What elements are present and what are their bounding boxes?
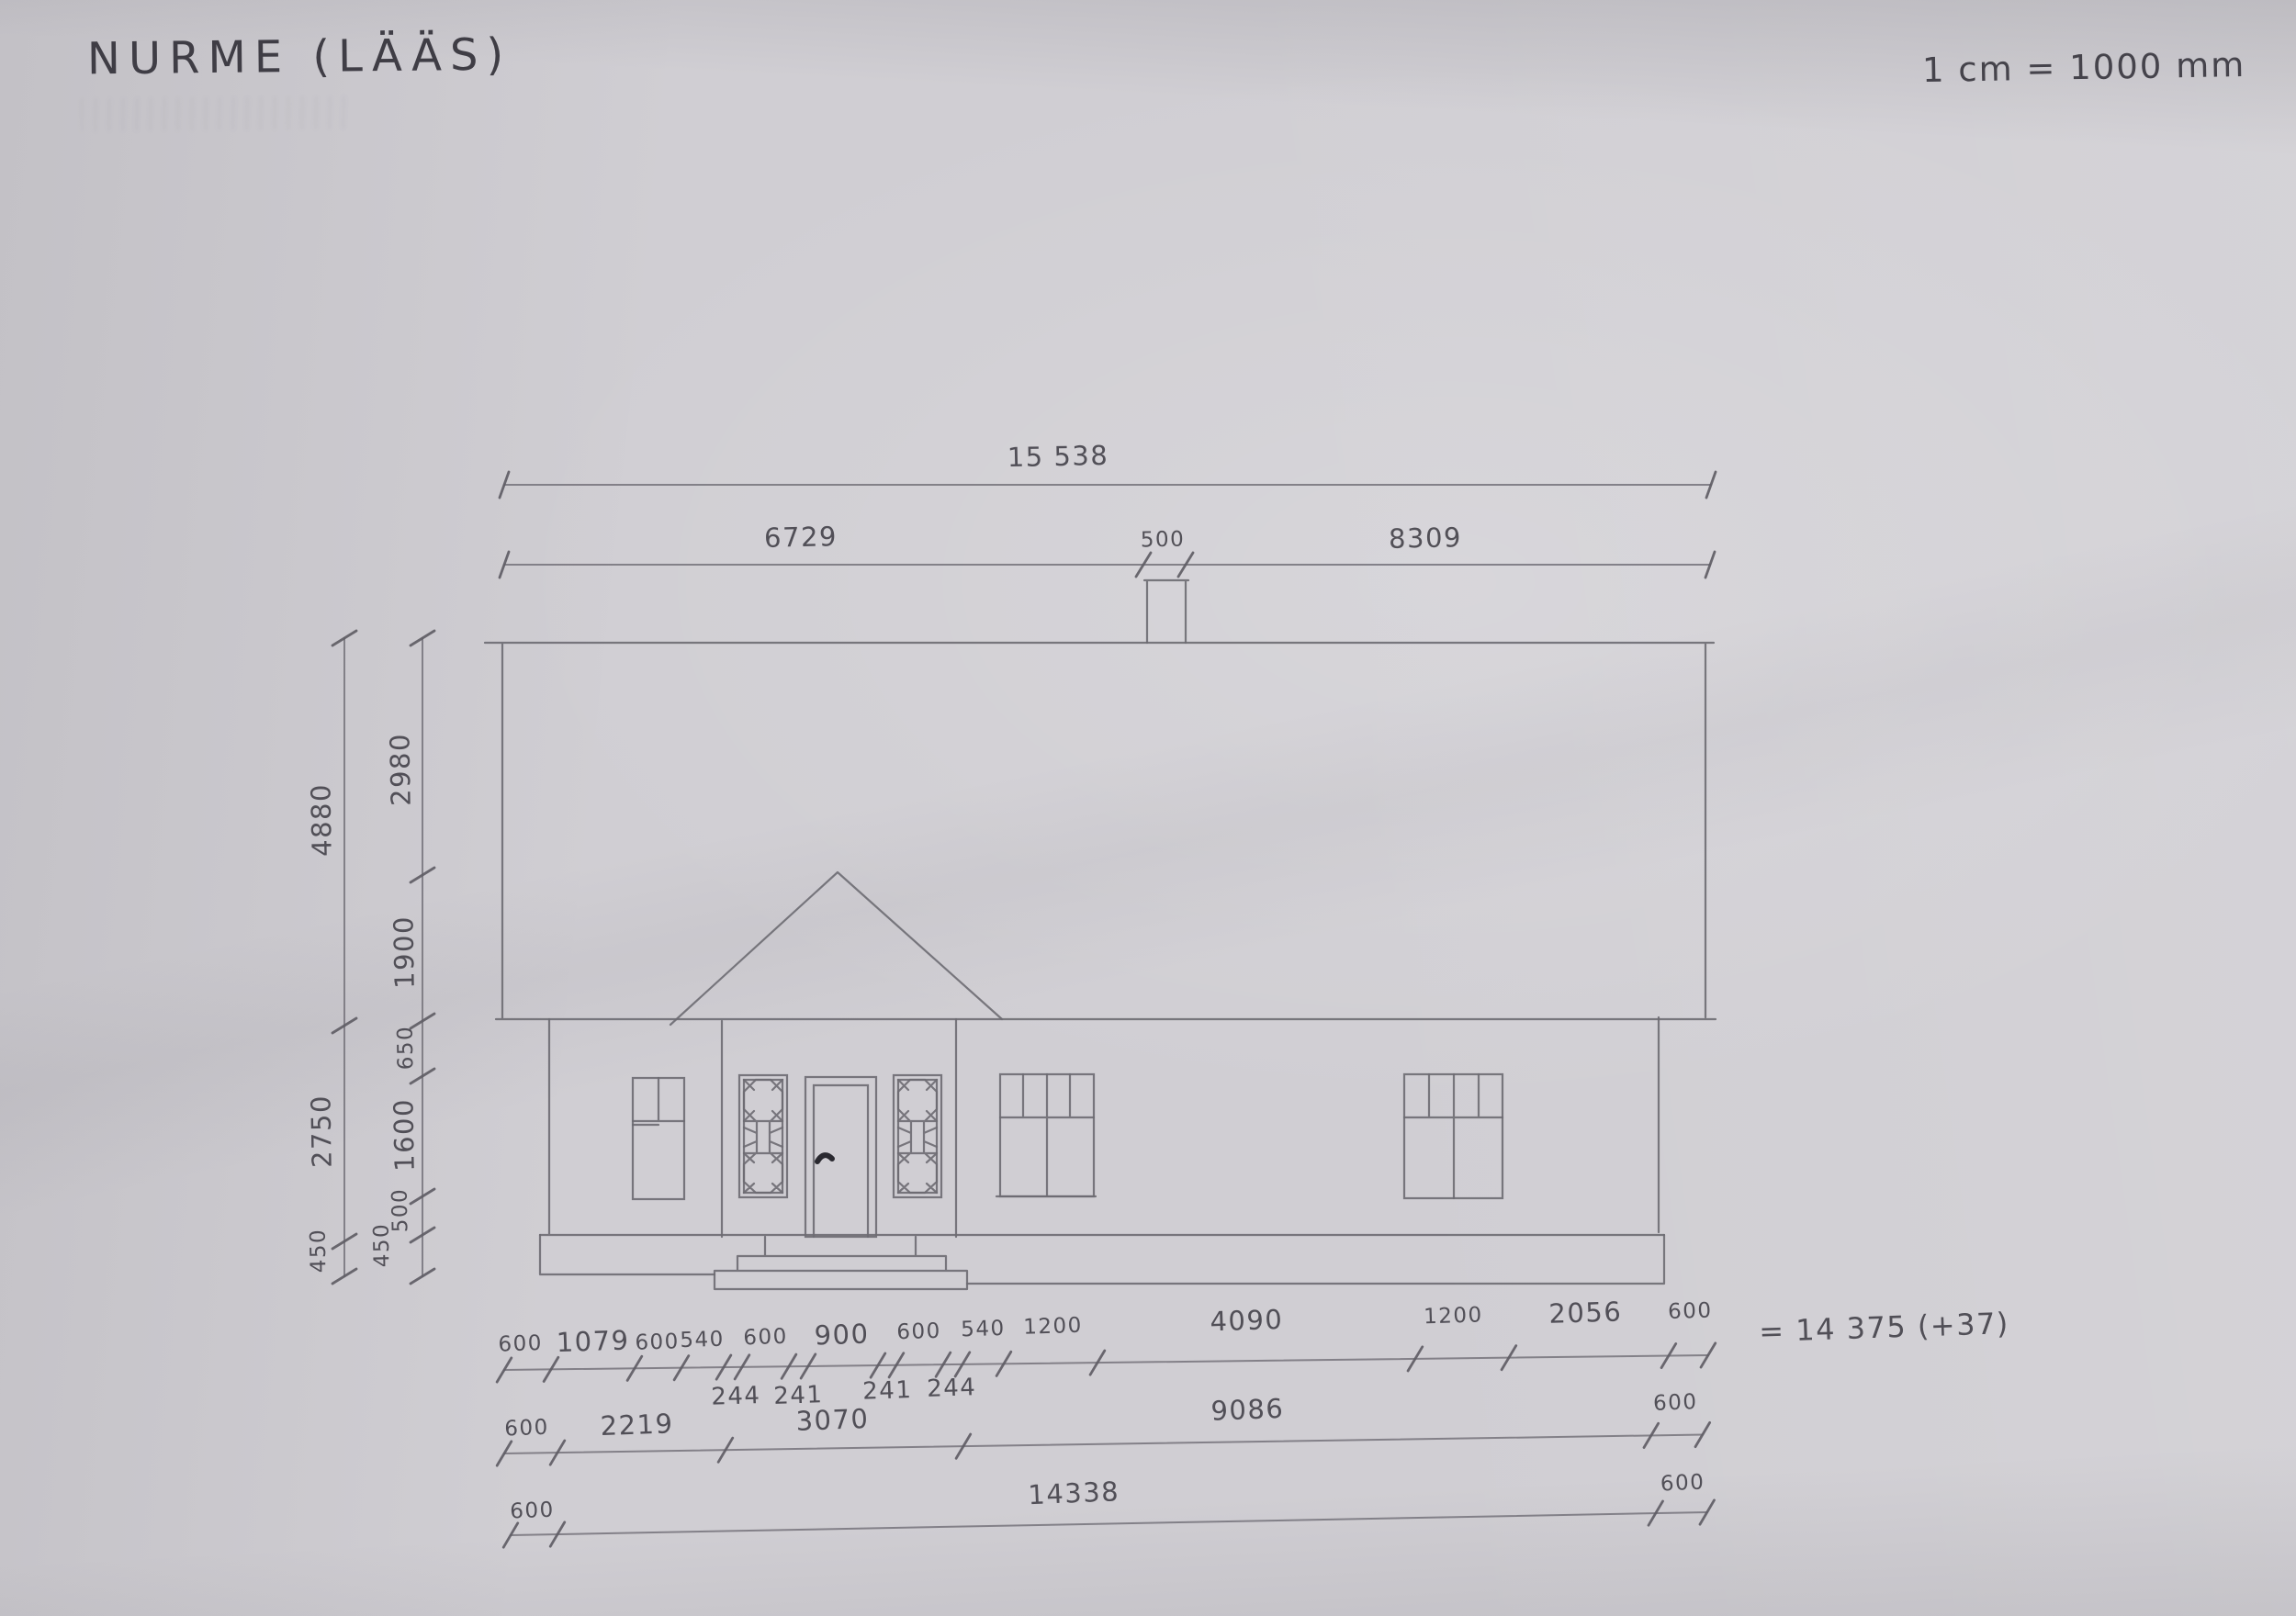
dim-label-eave-right: 8309 [1389,522,1463,555]
dim-label-chimney: 500 [1141,527,1186,552]
dim-label-total-width: 15 538 [1007,440,1109,473]
porch-pediment [670,872,1002,1025]
dim-line-eave-row [500,552,1715,578]
dim-label-left-outer-3: 450 [307,1229,332,1274]
foundation [540,1235,1664,1284]
dim-label-left-inner-4: 1600 [388,1098,420,1172]
dim-label-left-inner-2: 1900 [388,915,420,989]
dim-label-eave-left: 6729 [764,521,838,554]
dim-line-top-total [500,472,1716,498]
pencil-drawing [0,0,2296,1616]
right-window-2 [1404,1074,1503,1198]
dim-label-left-outer-1: 4880 [305,783,337,857]
dim-label-left-outer-2: 2750 [305,1094,337,1168]
entry-steps [715,1237,967,1289]
photo-of-elevation-drawing: NURME (LÄÄS) 1 cm = 1000 mm 15 538 6729 … [0,0,2296,1616]
right-window-1 [996,1074,1096,1196]
chimney [1144,580,1188,643]
dim-line-bottom-row1 [497,1343,1716,1382]
dim-label-left-inner-3: 650 [394,1026,419,1071]
dim-line-bottom-row3 [503,1500,1715,1547]
dim-line-bottom-row2 [497,1422,1710,1465]
left-window [633,1078,684,1199]
dim-label-left-inner-1: 2980 [384,733,416,806]
door-handle [817,1155,832,1161]
roof-outline [485,643,1716,1019]
drawing-title: NURME (LÄÄS) [87,29,512,85]
main-wall [540,1017,1664,1235]
dim-line-left-outer [332,631,356,1284]
scale-note: 1 cm = 1000 mm [1922,45,2246,90]
entry-door [805,1077,876,1237]
dim-label-left-inner-6: 450 [370,1223,395,1268]
